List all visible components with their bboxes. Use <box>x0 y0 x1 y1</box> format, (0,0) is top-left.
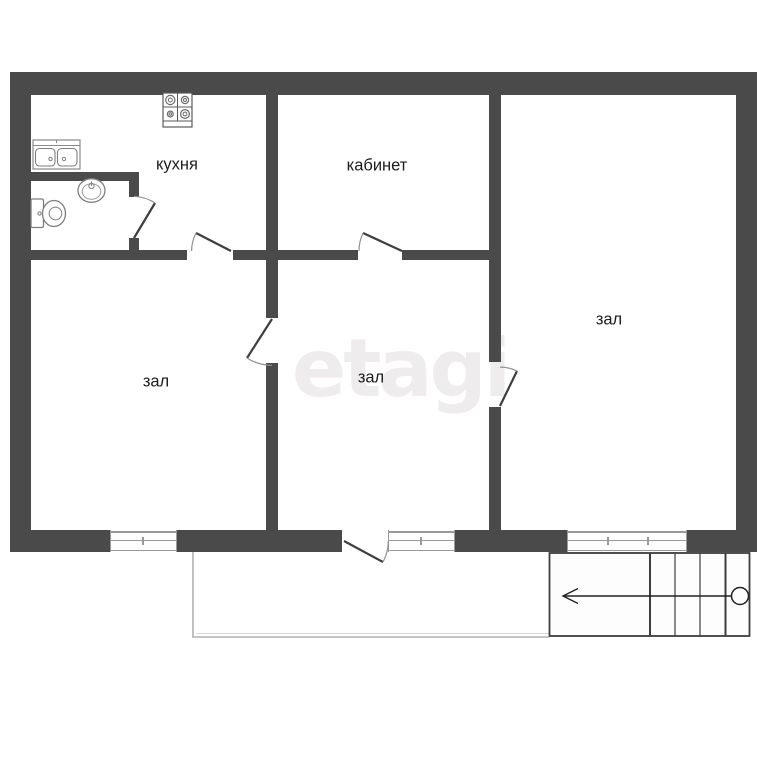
door-kitchen <box>192 233 231 251</box>
wall-office-hall-right <box>489 95 501 362</box>
outer-wall-left <box>10 72 31 552</box>
window-frame-line <box>568 540 686 542</box>
window-frame-line <box>111 531 176 533</box>
wall-halls-right-lower <box>489 407 501 530</box>
wall-middle-seg2 <box>233 250 358 260</box>
washbasin-icon <box>78 179 105 203</box>
outer-wall-bottom-seg3 <box>453 530 567 552</box>
outer-wall-bottom-seg1 <box>10 530 110 552</box>
room-label-hall-middle: зал <box>358 369 384 388</box>
porch-outline <box>193 552 549 637</box>
kitchen-sink-icon <box>33 140 80 169</box>
window-frame-line <box>389 550 454 552</box>
stove-icon <box>163 93 192 127</box>
door-entrance <box>344 541 388 562</box>
window-frame-line <box>111 550 176 552</box>
outer-wall-right <box>736 72 757 552</box>
door-office <box>359 233 402 251</box>
window-hall-middle <box>388 530 455 552</box>
wall-middle-seg3 <box>402 250 489 260</box>
room-label-hall-left: зал <box>143 373 169 392</box>
outer-wall-bottom-seg4 <box>685 530 757 552</box>
wall-kitchen-office <box>266 95 278 318</box>
window-tick <box>420 537 422 545</box>
door-bathroom <box>134 196 155 238</box>
wall-halls-left-lower <box>266 363 278 530</box>
window-tick <box>607 537 609 545</box>
window-hall-left <box>110 530 177 552</box>
window-hall-right <box>567 530 687 552</box>
window-frame-line <box>389 540 454 542</box>
window-frame-line <box>568 531 686 533</box>
room-label-hall-right: зал <box>596 311 622 330</box>
wall-bathroom-right-lower <box>129 238 139 250</box>
window-frame-line <box>568 550 686 552</box>
stairs-direction-arrow <box>563 588 749 605</box>
wall-middle-seg1 <box>31 250 187 260</box>
staircase <box>550 553 750 636</box>
door-hall-left <box>247 319 272 365</box>
room-label-office: кабинет <box>347 157 408 176</box>
outer-wall-bottom-seg2 <box>175 530 342 552</box>
window-frame-line <box>111 540 176 542</box>
wall-bathroom-right-upper <box>129 172 139 197</box>
window-frame-line <box>389 531 454 533</box>
outer-wall-top <box>10 72 757 95</box>
floor-plan: etagi <box>0 0 768 768</box>
room-label-kitchen: кухня <box>156 156 198 175</box>
wall-bathroom-top <box>31 172 139 181</box>
window-tick <box>647 537 649 545</box>
watermark: etagi <box>292 329 508 409</box>
window-tick <box>142 537 144 545</box>
toilet-icon <box>31 199 66 228</box>
